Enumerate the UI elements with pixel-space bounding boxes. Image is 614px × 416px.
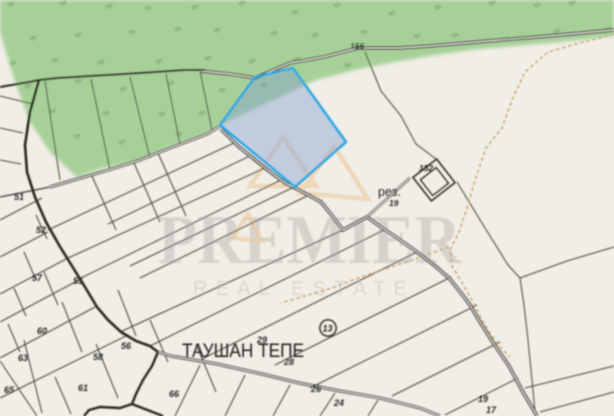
svg-text:57: 57 [32,273,43,283]
svg-text:PREMIER: PREMIER [158,202,462,279]
svg-text:65: 65 [4,385,15,395]
svg-text:58: 58 [93,352,103,362]
svg-text:17: 17 [486,405,497,415]
svg-text:152: 152 [419,163,433,173]
svg-text:66: 66 [169,389,180,399]
svg-text:13: 13 [323,324,333,334]
svg-text:52: 52 [36,225,46,235]
svg-text:55: 55 [73,276,84,286]
svg-text:61: 61 [78,383,88,393]
svg-text:рез.: рез. [378,185,401,199]
svg-text:24: 24 [333,398,344,408]
svg-text:26: 26 [310,384,322,394]
svg-text:19: 19 [478,394,488,404]
svg-text:19: 19 [389,198,399,208]
svg-text:56: 56 [121,341,132,351]
svg-text:51: 51 [14,192,24,202]
svg-text:156: 156 [350,41,364,51]
svg-text:63: 63 [18,353,28,363]
svg-text:60: 60 [37,326,47,336]
svg-text:ТАУШАН ТЕПЕ: ТАУШАН ТЕПЕ [182,340,304,362]
